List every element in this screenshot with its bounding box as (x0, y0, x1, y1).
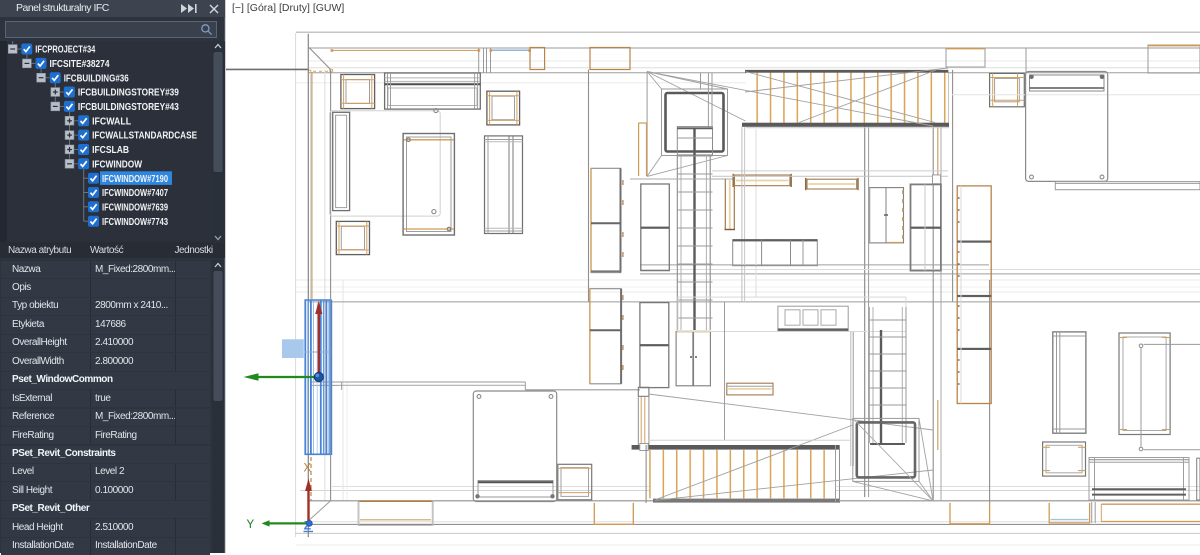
svg-text:IFCBUILDINGSTOREY#39: IFCBUILDINGSTOREY#39 (78, 88, 179, 99)
svg-text:X: X (304, 463, 312, 475)
svg-text:IFCWALLSTANDARDCASE: IFCWALLSTANDARDCASE (92, 131, 197, 142)
svg-text:IFCWINDOW: IFCWINDOW (92, 159, 142, 170)
svg-text:IFCWINDOW#7407: IFCWINDOW#7407 (102, 188, 168, 199)
svg-text:Y: Y (247, 519, 255, 531)
svg-text:IFCWINDOW#7639: IFCWINDOW#7639 (102, 202, 168, 213)
svg-text:IFCSITE#38274: IFCSITE#38274 (50, 59, 110, 70)
svg-text:IFCBUILDING#36: IFCBUILDING#36 (64, 73, 129, 84)
svg-text:IFCPROJECT#34: IFCPROJECT#34 (35, 45, 95, 56)
svg-text:IFCBUILDINGSTOREY#43: IFCBUILDINGSTOREY#43 (78, 102, 179, 113)
svg-text:IFCSLAB: IFCSLAB (92, 145, 129, 156)
svg-text:IFCWINDOW#7190: IFCWINDOW#7190 (102, 174, 168, 185)
svg-text:IFCWALL: IFCWALL (92, 116, 131, 127)
svg-text:IFCWINDOW#7743: IFCWINDOW#7743 (102, 217, 168, 228)
